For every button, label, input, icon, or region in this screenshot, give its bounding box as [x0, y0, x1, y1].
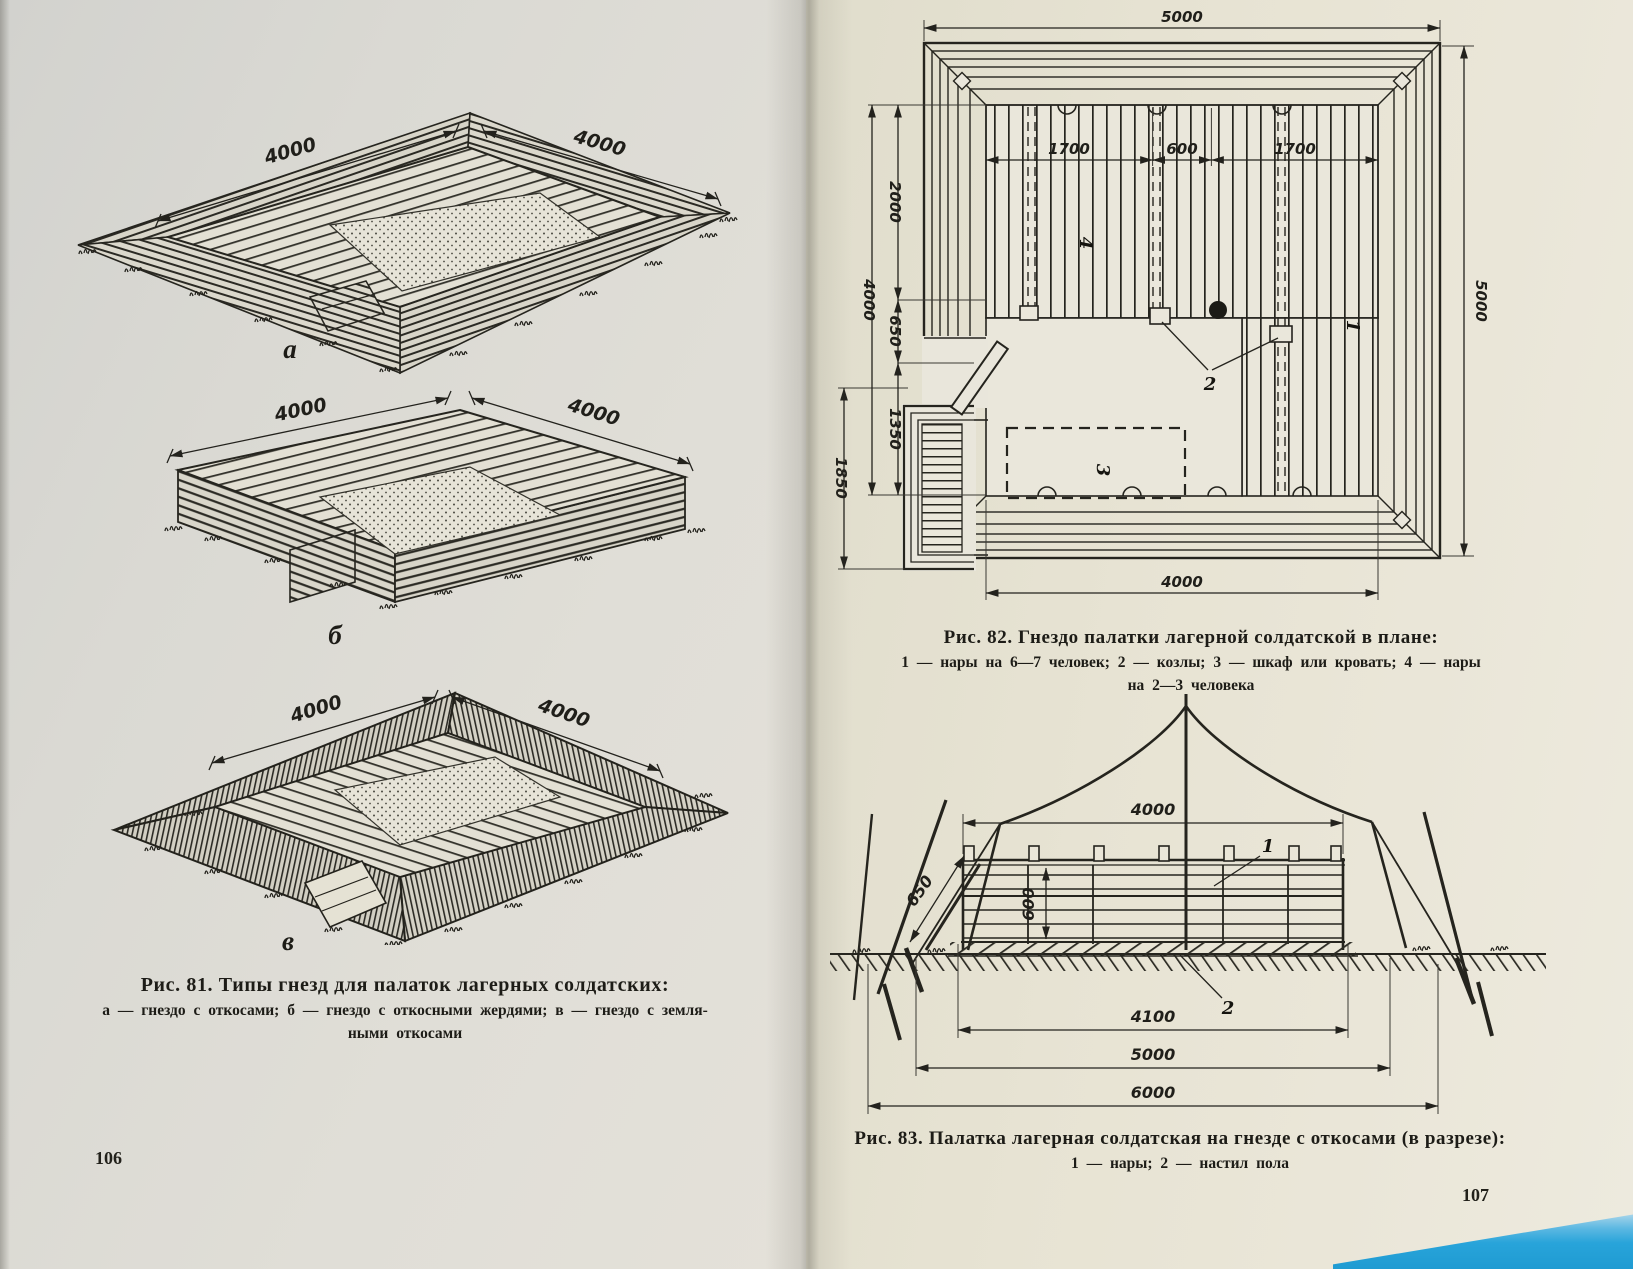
section-dim-slope: 650 [902, 872, 937, 910]
figure-81-legend-line2: ными откосами [60, 1022, 750, 1045]
section-dim-floor-width: 4100 [1130, 1007, 1176, 1026]
plan-dim-left-outer: 1850 [832, 457, 850, 499]
section-label-floor: 2 [1221, 998, 1235, 1019]
figure-81-legend-line1: а — гнездо с откосами; б — гнездо с отко… [60, 999, 750, 1022]
plan-label-trestles: 2 [1203, 374, 1217, 395]
figure-81v-letter: в [266, 926, 310, 957]
section-label-bunks: 1 [1262, 836, 1275, 857]
plan-dim-right: 5000 [1472, 280, 1490, 322]
plan-dim-left-lower: 1350 [886, 408, 904, 450]
figure-82-plan: 5000 5000 1700 600 1700 2000 650 1350 40… [812, 8, 1517, 608]
book-scan: { "left_page": { "page_number": "106", "… [0, 0, 1633, 1269]
figure-81a-letter: а [268, 334, 312, 365]
left-page: 4000 4000 а [0, 0, 806, 1269]
dim-b-right: 4000 [564, 394, 622, 431]
figure-83-title: Рис. 83. Палатка лагерная солдатская на … [818, 1126, 1542, 1152]
section-bunk-platform [926, 846, 1345, 950]
figure-83-section: 4000 600 650 4100 5000 6000 1 2 [828, 692, 1548, 1122]
plan-dim-left-middle: 650 [886, 315, 904, 346]
figure-81a-nest-with-slopes: 4000 4000 [70, 95, 740, 385]
plan-dim-left-total: 4000 [860, 278, 878, 321]
plan-floor-boards [986, 105, 1378, 496]
plan-dim-seg-right: 1700 [1274, 140, 1316, 158]
plan-dim-seg-left: 1700 [1048, 140, 1090, 158]
plan-label-bunks-main: 1 [1342, 320, 1363, 333]
section-tent [854, 694, 1492, 1040]
page-number-right: 107 [1462, 1185, 1489, 1206]
figure-82-title: Рис. 82. Гнездо палатки лагерной солдатс… [846, 625, 1536, 651]
dim-a-left: 4000 [261, 133, 319, 169]
figure-81-title: Рис. 81. Типы гнезд для палаток лагерных… [60, 972, 750, 999]
dim-v-right: 4000 [534, 694, 592, 732]
figure-82-legend-line1: 1 — нары на 6—7 человек; 2 — козлы; 3 — … [846, 651, 1536, 674]
figure-81b-nest-with-log-walls: 4000 4000 [140, 382, 710, 652]
figure-83-legend: 1 — нары; 2 — настил пола [818, 1152, 1542, 1175]
figure-82-caption: Рис. 82. Гнездо палатки лагерной солдатс… [846, 625, 1536, 697]
dim-v-left: 4000 [287, 691, 345, 728]
section-dim-bunk-height: 600 [1019, 887, 1038, 920]
plan-dim-bottom: 4000 [1160, 573, 1203, 591]
scan-edge-shadow [0, 0, 10, 1269]
plan-stove-mark [1209, 301, 1227, 319]
section-dim-bunk-width: 4000 [1130, 800, 1176, 819]
figure-83-caption: Рис. 83. Палатка лагерная солдатская на … [818, 1126, 1542, 1175]
section-dim-nest-width: 5000 [1131, 1045, 1176, 1064]
section-floor-boards [948, 942, 1358, 956]
plan-dim-top: 5000 [1161, 8, 1203, 26]
figure-81-caption: Рис. 81. Типы гнезд для палаток лагерных… [60, 972, 750, 1046]
dim-b-left: 4000 [272, 394, 329, 427]
plan-dim-left-upper: 2000 [886, 181, 904, 223]
section-dim-tent-span: 6000 [1131, 1083, 1176, 1102]
plan-label-cabinet: 3 [1092, 464, 1113, 477]
page-number-left: 106 [95, 1148, 122, 1169]
plan-label-bunks-small: 4 [1075, 237, 1096, 250]
right-page: 5000 5000 1700 600 1700 2000 650 1350 40… [806, 0, 1633, 1269]
plan-dim-seg-center: 600 [1166, 140, 1197, 158]
figure-81v-nest-with-earth-banks: 4000 4000 [100, 645, 740, 945]
